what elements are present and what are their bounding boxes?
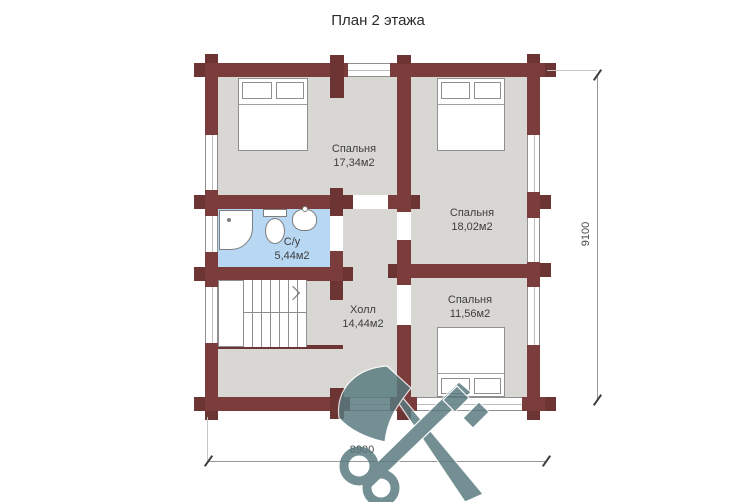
log-stub — [397, 55, 411, 64]
log-stub — [343, 267, 353, 281]
label-bathroom: С/у 5,44м2 — [244, 236, 340, 263]
log-stub — [205, 54, 218, 63]
log-stub — [388, 264, 397, 278]
pillow — [474, 82, 501, 99]
label-bedroom2: Спальня 18,02м2 — [424, 207, 520, 234]
log-stub — [330, 55, 344, 98]
crossed-axe-key-icon — [325, 326, 530, 502]
log-stub — [540, 195, 551, 209]
room-name: Холл — [315, 304, 411, 318]
room-area: 17,34м2 — [306, 157, 402, 171]
log-stub — [194, 195, 205, 209]
stair-upper-flight — [243, 280, 307, 313]
door-bedroom1 — [353, 195, 388, 209]
company-watermark: СОРОКИН & УГРЕНИНОВ СРУБЫ СИБИРИ — [325, 326, 753, 502]
log-stub — [411, 195, 420, 209]
floor-plan-page: План 2 этажа — [0, 0, 753, 502]
shower-drain — [227, 218, 231, 222]
window-right-2 — [527, 218, 540, 262]
room-area: 5,44м2 — [244, 250, 340, 264]
dimension-height-label: 9100 — [580, 212, 592, 256]
wall-bathroom-bottom — [218, 267, 345, 281]
sink-faucet — [302, 206, 308, 212]
blanket-fold — [438, 104, 504, 105]
pillow — [441, 82, 470, 99]
room-name: Спальня — [422, 294, 518, 308]
window-top — [348, 63, 390, 77]
label-bedroom3: Спальня 11,56м2 — [422, 294, 518, 321]
log-stub — [330, 188, 343, 216]
door-bedroom2 — [397, 212, 411, 240]
log-stub — [330, 281, 343, 300]
window-left-2 — [205, 216, 218, 252]
room-area: 11,56м2 — [422, 308, 518, 322]
window-right-1 — [527, 135, 540, 192]
room-name: Спальня — [306, 143, 402, 157]
wall-bedrooms-right-divider — [411, 264, 527, 278]
label-bedroom1: Спальня 17,34м2 — [306, 143, 402, 170]
sink — [292, 209, 317, 231]
room-area: 18,02м2 — [424, 221, 520, 235]
blanket-fold — [239, 104, 307, 105]
room-name: Спальня — [424, 207, 520, 221]
page-title: План 2 этажа — [278, 12, 478, 29]
extension-line — [207, 417, 208, 462]
window-left-1 — [205, 135, 218, 190]
log-stub — [194, 397, 205, 411]
stair-lower-flight — [243, 313, 307, 347]
log-stub — [194, 267, 205, 281]
window-left-3 — [205, 287, 218, 343]
room-name: С/у — [244, 236, 340, 250]
toilet-tank — [263, 209, 287, 217]
log-stub — [527, 54, 540, 63]
pillow — [276, 82, 304, 99]
log-stub — [540, 263, 551, 277]
extension-line — [547, 70, 597, 71]
log-stub — [194, 63, 205, 77]
log-stub — [343, 195, 353, 209]
pillow — [242, 82, 272, 99]
